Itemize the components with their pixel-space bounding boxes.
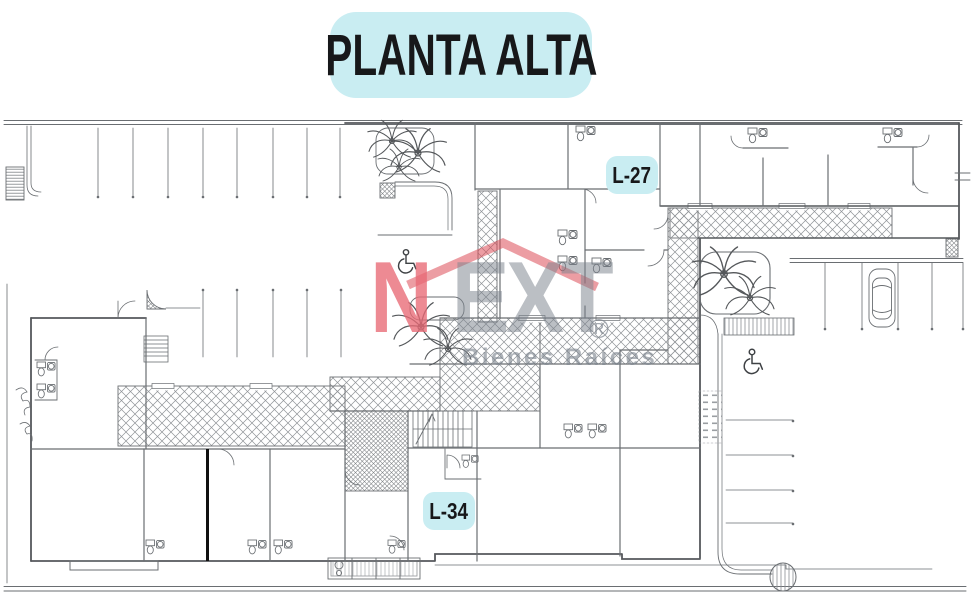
- page-title: PLANTA ALTA: [325, 22, 597, 89]
- west-edge-bushes: [16, 388, 32, 441]
- parking-right-side: [726, 420, 794, 526]
- bold-divider-line: [206, 449, 209, 561]
- dense-hatch-block: [345, 411, 408, 491]
- bathroom-fixtures-s2: [588, 424, 606, 438]
- bathroom-fixtures-w2: [37, 384, 55, 398]
- wheelchair-icon: [744, 349, 762, 373]
- bathroom-fixtures-s3: [388, 540, 405, 553]
- equipment-strip: [328, 558, 420, 579]
- stairs-main: [413, 411, 472, 447]
- bathroom-fixtures-c1: [558, 230, 577, 245]
- car-icon: [869, 269, 895, 327]
- unit-badge-l34: L-34: [423, 492, 475, 530]
- bush: [770, 563, 796, 591]
- northeast-rooms: [475, 123, 970, 206]
- dotted-crossing: [699, 391, 722, 443]
- bathroom-fixtures-l34: [462, 455, 478, 467]
- bathroom-fixtures-s1: [564, 424, 582, 438]
- terrace-edges: [70, 561, 932, 570]
- east-courtyard: [693, 247, 965, 591]
- parking-row-top-left: [6, 126, 341, 200]
- hatched-corridors: [118, 191, 958, 491]
- stairs-west: [144, 336, 168, 362]
- palm-tree-icon: [725, 276, 775, 314]
- unit-label-l27: L-27: [613, 162, 652, 189]
- parking-row-mid-left: [147, 289, 342, 357]
- bathroom-fixtures-ne1: [748, 128, 767, 143]
- unit-label-l34: L-34: [430, 498, 469, 525]
- unit-badge-l27: L-27: [606, 156, 658, 194]
- bathroom-fixtures-w4: [248, 540, 266, 554]
- bathroom-fixtures-c2: [558, 256, 577, 271]
- bathroom-fixtures-w5: [274, 540, 292, 554]
- palm-tree-icon: [378, 149, 420, 181]
- bathroom-fixtures-ne2: [883, 128, 902, 143]
- page-title-banner: PLANTA ALTA: [330, 12, 592, 98]
- bathroom-fixtures-c3: [592, 258, 611, 273]
- bathroom-fixtures-w1: [37, 362, 55, 376]
- bathroom-fixtures-w3: [146, 540, 164, 554]
- floorplan-page: N EXT ® Bienes Raíces PLANTA ALTA L-27 L…: [0, 0, 971, 605]
- wheelchair-icon: [399, 250, 416, 273]
- palm-tree-icon: [693, 247, 756, 295]
- bathroom-fixtures-n: [576, 126, 595, 141]
